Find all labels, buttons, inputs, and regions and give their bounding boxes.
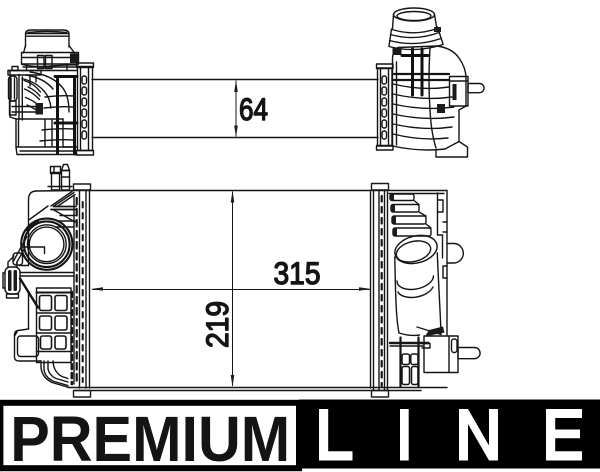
svg-text:64: 64 <box>239 91 268 127</box>
svg-text:PREMIUM: PREMIUM <box>10 403 290 472</box>
svg-text:315: 315 <box>274 255 321 291</box>
svg-text:219: 219 <box>199 301 235 348</box>
